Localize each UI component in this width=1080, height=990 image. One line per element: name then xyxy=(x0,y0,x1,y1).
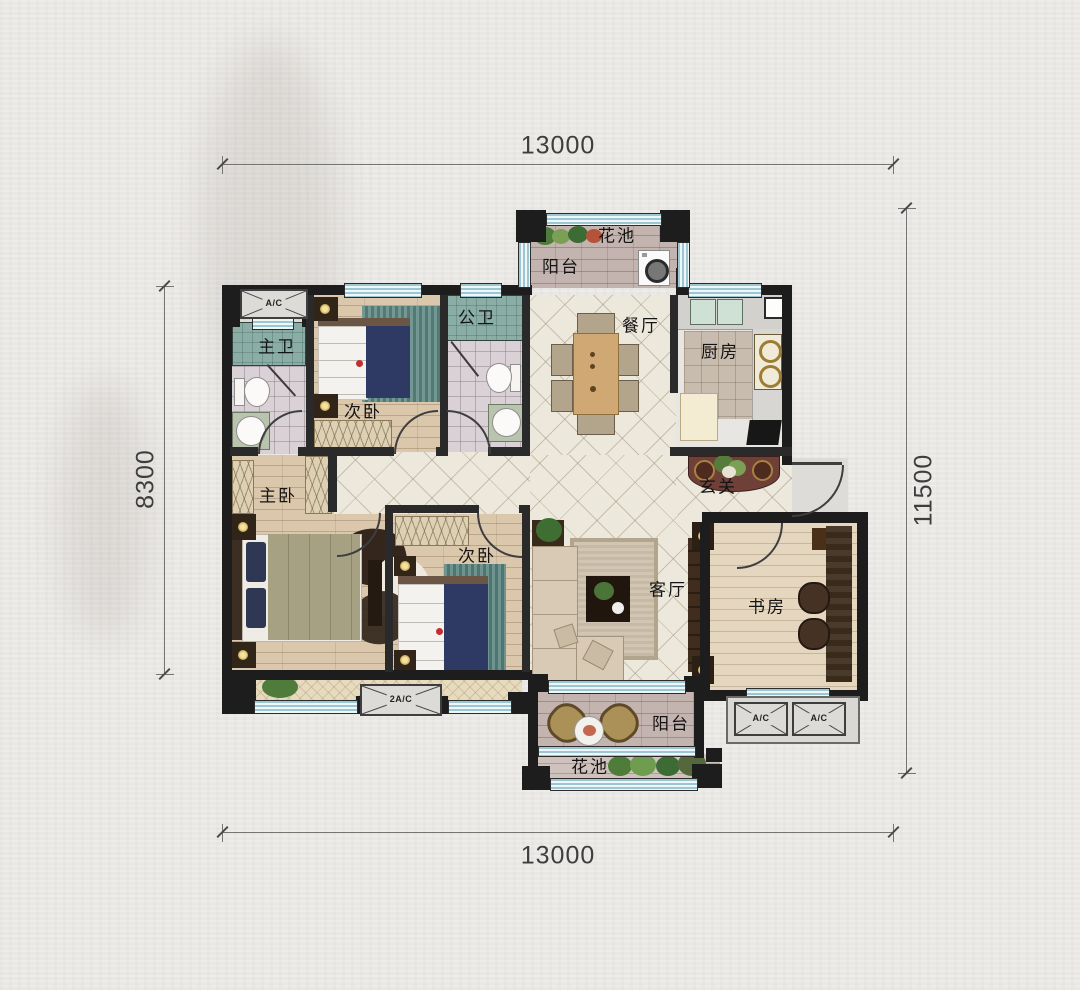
partition xyxy=(298,447,394,456)
window xyxy=(344,283,422,298)
label-living: 客厅 xyxy=(649,582,687,599)
balcony-table xyxy=(574,716,604,746)
nightstand xyxy=(394,650,416,670)
label-balcony-top: 阳台 xyxy=(542,259,580,276)
window xyxy=(677,242,690,288)
label-dining: 餐厅 xyxy=(622,318,660,335)
label-balcony-bottom: 阳台 xyxy=(652,716,690,733)
ac-unit-bottom-right-2: A/C xyxy=(792,702,846,736)
nightstand xyxy=(230,642,256,668)
kitchen-cabinet-corner xyxy=(746,420,782,445)
plant-icon xyxy=(568,226,588,243)
dim-bottom-label: 13000 xyxy=(521,844,596,869)
plant-icon xyxy=(722,466,736,478)
wall xyxy=(222,670,532,680)
label-master-bath: 主卫 xyxy=(258,339,296,356)
wardrobe xyxy=(395,516,469,546)
wall xyxy=(700,523,710,690)
bed-flower xyxy=(356,360,363,367)
nightstand xyxy=(312,297,338,321)
plant-icon xyxy=(608,756,632,776)
wall xyxy=(222,285,240,327)
partition xyxy=(522,295,530,455)
window xyxy=(518,242,531,288)
label-public-bath: 公卫 xyxy=(458,310,496,327)
sofa xyxy=(532,546,578,688)
study-chair xyxy=(798,582,830,614)
fridge xyxy=(680,393,718,441)
bed-blanket xyxy=(444,584,488,674)
kitchen-sink xyxy=(717,299,743,325)
label-flower-bed-top: 花池 xyxy=(598,228,636,245)
nightstand xyxy=(312,394,338,418)
wall-post xyxy=(660,210,690,242)
label-master-bedroom: 主卧 xyxy=(259,488,297,505)
wardrobe xyxy=(232,460,254,514)
nightstand xyxy=(394,556,416,576)
partition xyxy=(306,295,314,455)
wall xyxy=(782,285,792,465)
wall xyxy=(857,512,868,701)
partition xyxy=(670,447,792,456)
study-chair xyxy=(798,618,830,650)
bed-blanket xyxy=(366,326,410,398)
background-smudge xyxy=(60,380,150,640)
label-kitchen: 厨房 xyxy=(701,344,739,361)
window xyxy=(546,213,662,226)
bed-bench xyxy=(368,560,382,626)
plant-icon xyxy=(536,518,562,542)
partition xyxy=(519,505,530,513)
bay-window xyxy=(448,700,512,714)
wall-post xyxy=(222,672,256,714)
dining-chair xyxy=(551,344,573,376)
window-slider xyxy=(548,680,686,694)
wall-post xyxy=(516,210,546,242)
dining-chair xyxy=(551,380,573,412)
wall-post xyxy=(522,766,550,790)
label-bedroom-top: 次卧 xyxy=(344,404,382,421)
partition xyxy=(328,447,337,512)
public-sink-basin xyxy=(492,408,521,437)
floor-plan: 13000 13000 8300 11500 xyxy=(0,0,1080,990)
dim-top-label: 13000 xyxy=(521,134,596,159)
dining-table xyxy=(573,333,619,415)
ac-unit-top-left: A/C xyxy=(240,289,308,319)
partition xyxy=(385,505,479,513)
window xyxy=(688,283,762,298)
washing-machine xyxy=(638,250,670,286)
window xyxy=(538,746,696,757)
plant-icon xyxy=(656,756,680,776)
partition xyxy=(488,447,530,456)
ac-unit-bottom-left: 2A/C xyxy=(360,684,442,716)
dining-chair xyxy=(617,344,639,376)
dining-chair xyxy=(577,313,615,335)
partition xyxy=(230,447,258,456)
bed-headboard xyxy=(398,576,488,584)
study-desk xyxy=(826,526,852,682)
ac-unit-bottom-right-1: A/C xyxy=(734,702,788,736)
wall xyxy=(782,512,792,523)
partition xyxy=(385,505,393,672)
pillow xyxy=(246,588,266,628)
nightstand xyxy=(230,514,256,540)
bed-flower xyxy=(436,628,443,635)
kitchen-sink xyxy=(690,299,716,325)
pillow xyxy=(246,542,266,582)
dining-chair xyxy=(577,413,615,435)
dim-left-label: 8300 xyxy=(134,449,159,509)
label-study: 书房 xyxy=(748,599,786,616)
partition xyxy=(670,295,678,393)
bay-window xyxy=(254,700,358,714)
plant-icon xyxy=(630,754,656,776)
label-flower-bed-bottom: 花池 xyxy=(571,759,609,776)
master-bed-headboard xyxy=(232,536,242,640)
stove xyxy=(754,334,782,390)
label-bedroom-bottom: 次卧 xyxy=(458,548,496,565)
label-entry: 玄关 xyxy=(699,479,737,496)
wall xyxy=(222,285,232,680)
partition xyxy=(522,513,530,672)
window xyxy=(550,778,698,791)
console-bowl xyxy=(752,460,773,481)
coffee-table xyxy=(586,576,630,622)
window xyxy=(460,283,502,298)
wall-post xyxy=(706,748,722,762)
dim-right-label: 11500 xyxy=(912,454,937,527)
dining-chair xyxy=(617,380,639,412)
